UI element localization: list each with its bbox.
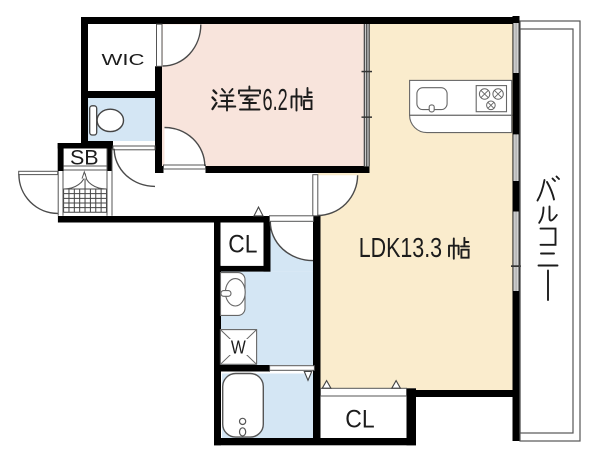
svg-text:6.2: 6.2 [263,82,288,117]
svg-text:W: W [231,338,246,358]
svg-text:LDK13.3: LDK13.3 [359,232,442,263]
svg-text:CL: CL [228,231,257,259]
svg-text:WIC: WIC [102,52,145,69]
svg-text:CL: CL [345,406,374,434]
svg-text:SB: SB [70,146,99,169]
